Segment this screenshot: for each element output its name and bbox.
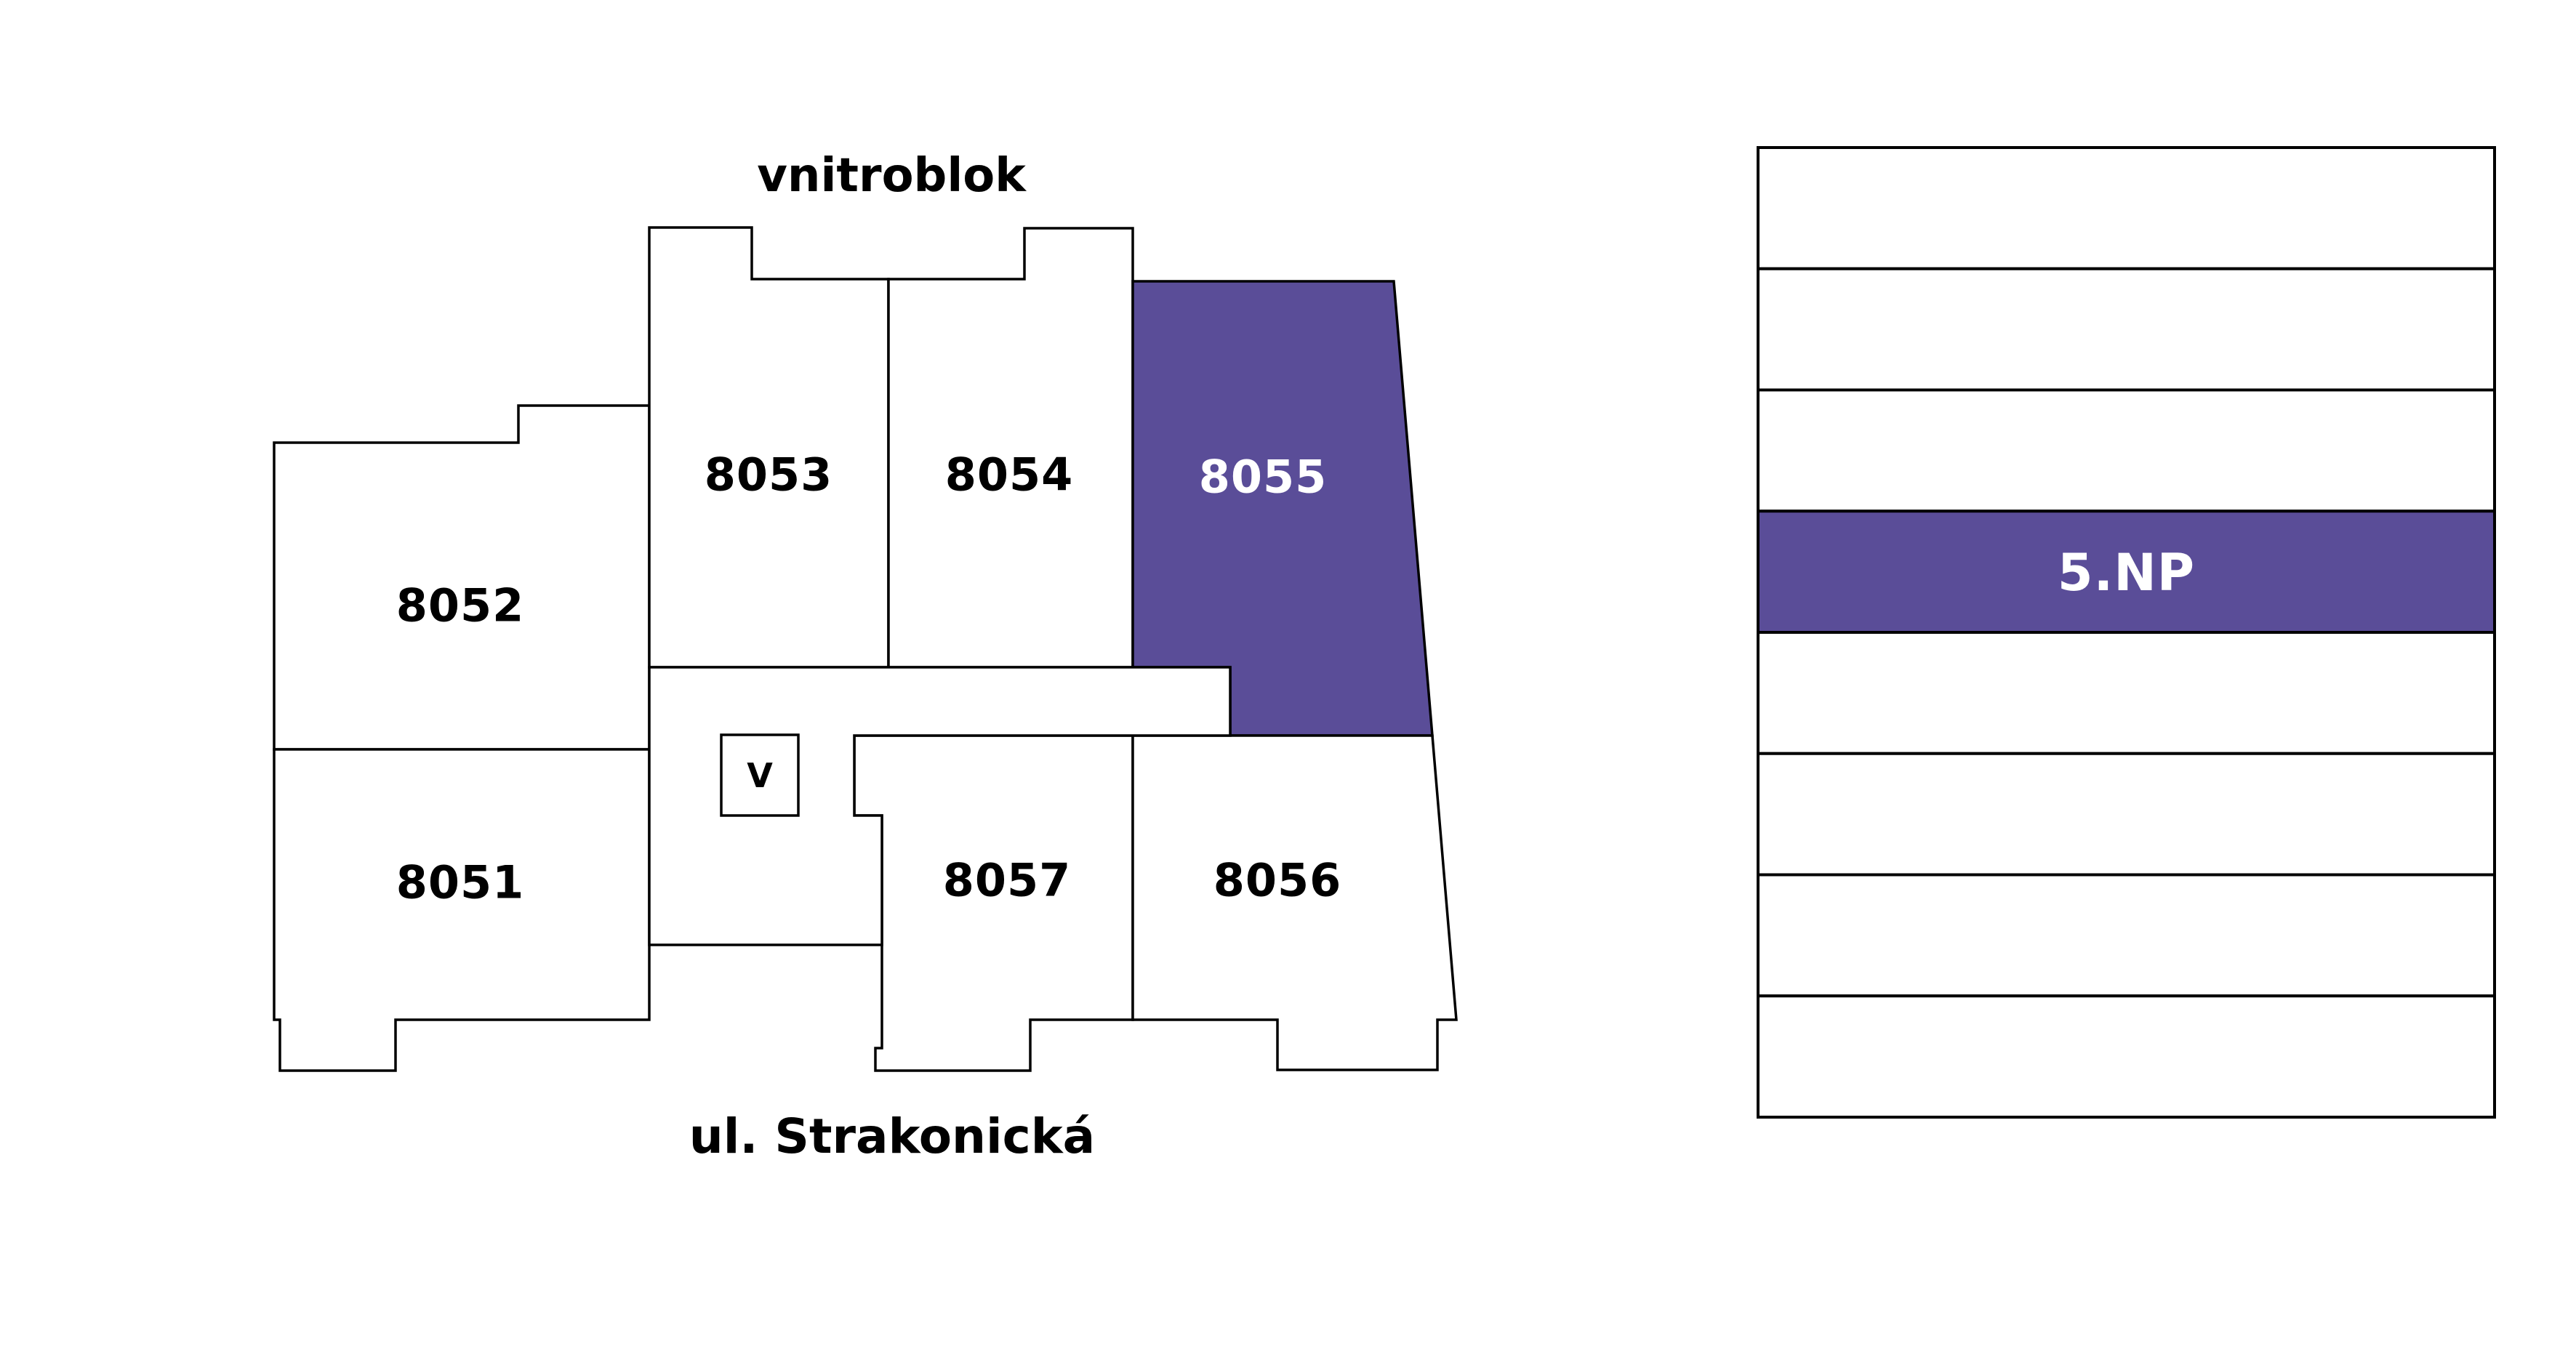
street-title: ul. Strakonická <box>689 1108 1095 1164</box>
unit-shape-8051[interactable] <box>274 749 649 1071</box>
unit-label-8052: 8052 <box>396 579 525 632</box>
floor-row-1np[interactable] <box>1758 996 2495 1117</box>
floor-stack: 5.NP <box>1758 148 2495 1117</box>
unit-label-8055: 8055 <box>1199 450 1328 503</box>
floorplan-canvas: 8052805180538054805580578056Vvnitrobloku… <box>0 0 2576 1365</box>
unit-label-8051: 8051 <box>396 855 525 909</box>
floor-row-8np[interactable] <box>1758 148 2495 269</box>
floor-row-6np[interactable] <box>1758 390 2495 512</box>
unit-label-8053: 8053 <box>705 448 833 501</box>
courtyard-title: vnitroblok <box>757 149 1027 203</box>
unit-label-8054: 8054 <box>945 448 1074 501</box>
floor-plan-page: 8052805180538054805580578056Vvnitrobloku… <box>0 0 2576 1365</box>
floor-row-3np[interactable] <box>1758 754 2495 875</box>
floor-row-7np[interactable] <box>1758 269 2495 390</box>
floor-row-label-5np: 5.NP <box>2058 543 2195 603</box>
floor-row-2np[interactable] <box>1758 875 2495 996</box>
elevator-label: V <box>747 756 773 795</box>
unit-label-8057: 8057 <box>943 853 1072 906</box>
floor-row-4np[interactable] <box>1758 632 2495 754</box>
unit-shape-8052[interactable] <box>274 406 649 749</box>
unit-label-8056: 8056 <box>1213 853 1342 906</box>
